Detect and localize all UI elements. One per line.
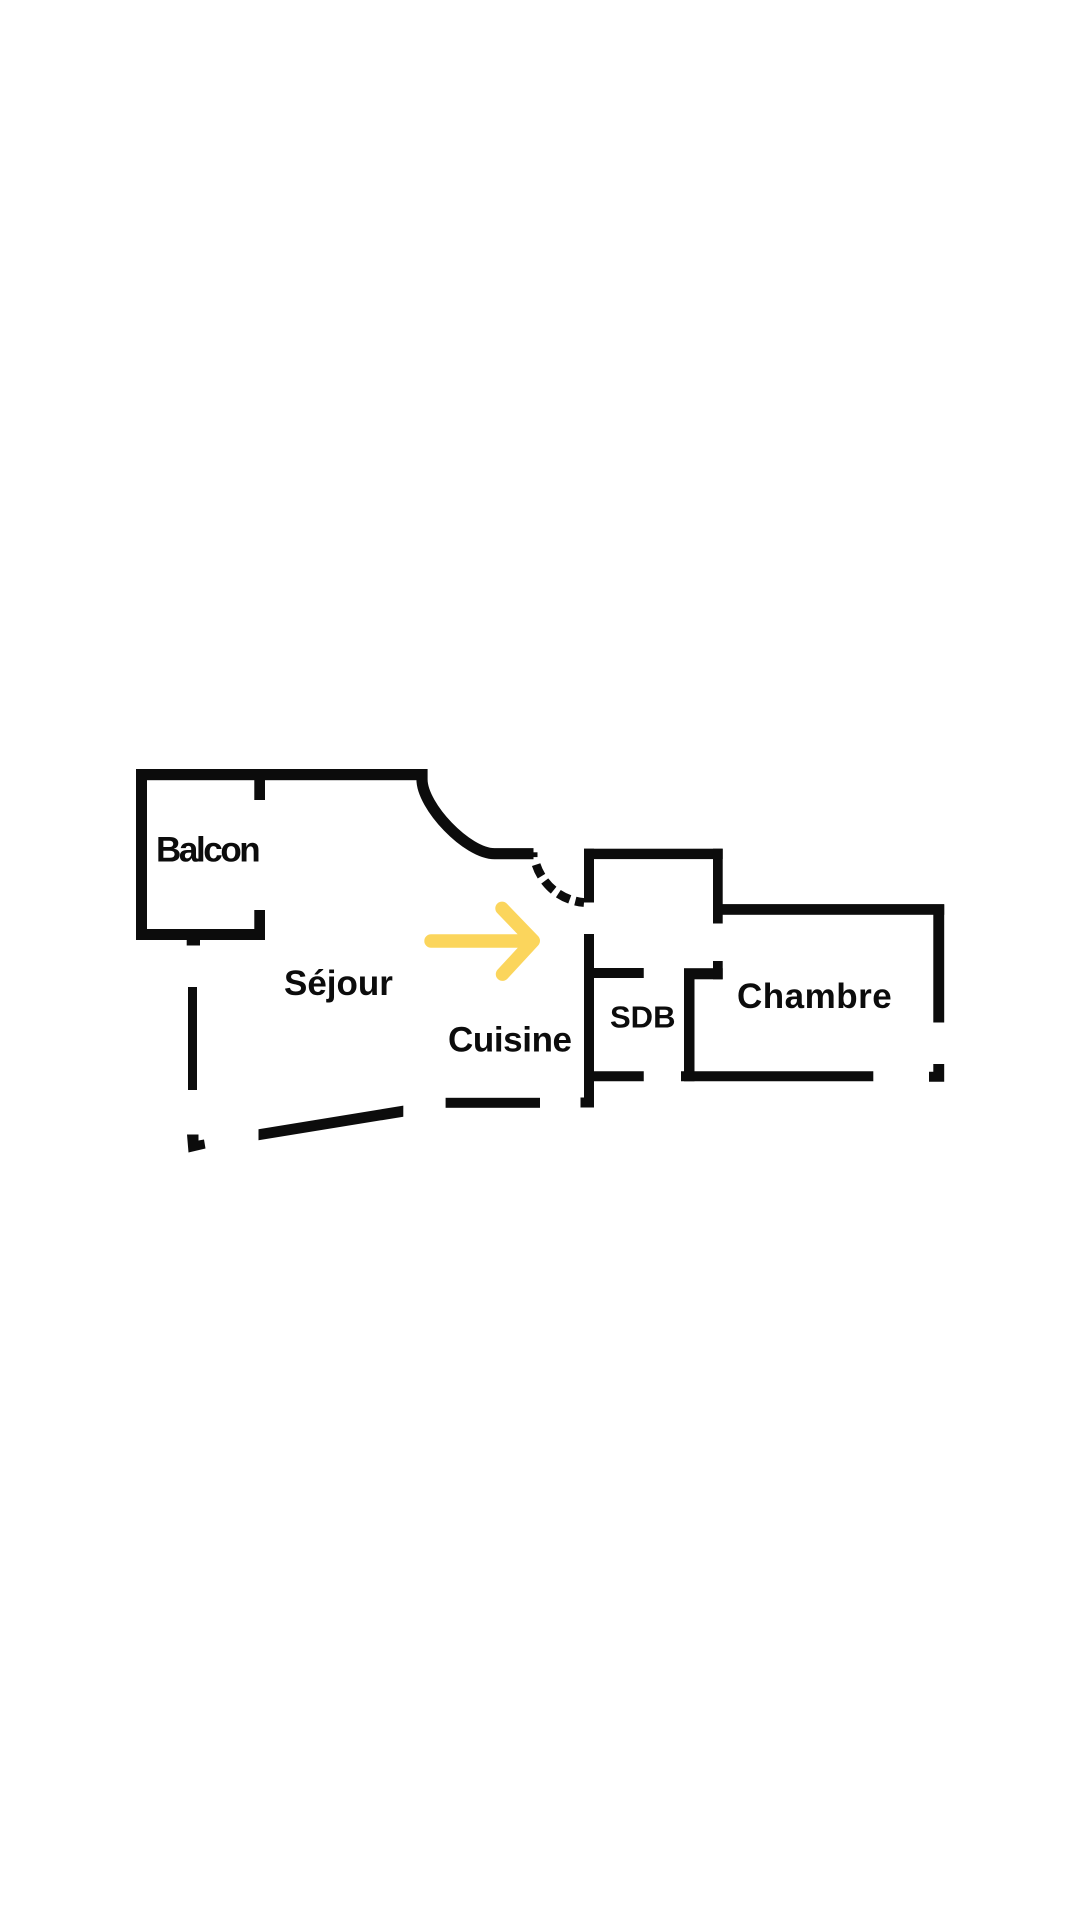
svg-text:Chambre: Chambre <box>737 977 892 1016</box>
svg-text:Balcon: Balcon <box>156 831 259 870</box>
svg-text:SDB: SDB <box>610 999 675 1034</box>
svg-text:Séjour: Séjour <box>284 964 393 1003</box>
svg-text:Cuisine: Cuisine <box>448 1021 572 1060</box>
